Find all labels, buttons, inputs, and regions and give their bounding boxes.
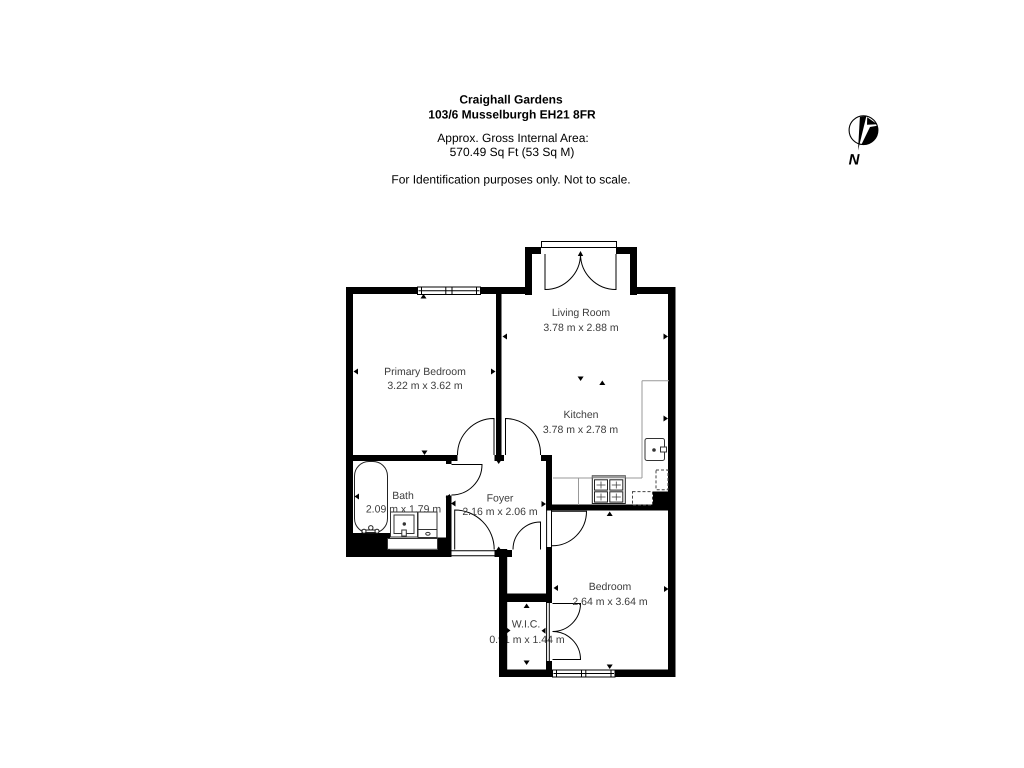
svg-text:Kitchen: Kitchen <box>563 409 598 421</box>
svg-text:2.64 m x 3.64 m: 2.64 m x 3.64 m <box>572 596 648 608</box>
svg-text:Bedroom: Bedroom <box>589 581 632 593</box>
svg-text:2.09 m x 1.79 m: 2.09 m x 1.79 m <box>366 504 442 516</box>
svg-text:3.22 m x 3.62 m: 3.22 m x 3.62 m <box>387 380 463 392</box>
svg-text:For Identification purposes on: For Identification purposes only. Not to… <box>391 173 630 187</box>
svg-text:103/6 Musselburgh EH21 8FR: 103/6 Musselburgh EH21 8FR <box>428 108 596 122</box>
svg-text:Foyer: Foyer <box>487 493 514 505</box>
svg-text:570.49 Sq Ft (53 Sq M): 570.49 Sq Ft (53 Sq M) <box>450 145 575 159</box>
svg-text:W.I.C.: W.I.C. <box>512 619 541 631</box>
svg-text:3.78 m x 2.88 m: 3.78 m x 2.88 m <box>543 322 619 334</box>
svg-text:3.78 m x 2.78 m: 3.78 m x 2.78 m <box>543 424 619 436</box>
svg-text:Approx. Gross Internal Area:: Approx. Gross Internal Area: <box>437 131 588 145</box>
svg-text:Bath: Bath <box>392 490 414 502</box>
svg-text:2.16 m x 2.06 m: 2.16 m x 2.06 m <box>462 506 538 518</box>
svg-text:Primary Bedroom: Primary Bedroom <box>384 366 466 378</box>
svg-text:Living Room: Living Room <box>552 307 611 319</box>
svg-text:N: N <box>849 152 861 169</box>
svg-text:Craighall Gardens: Craighall Gardens <box>459 93 563 107</box>
